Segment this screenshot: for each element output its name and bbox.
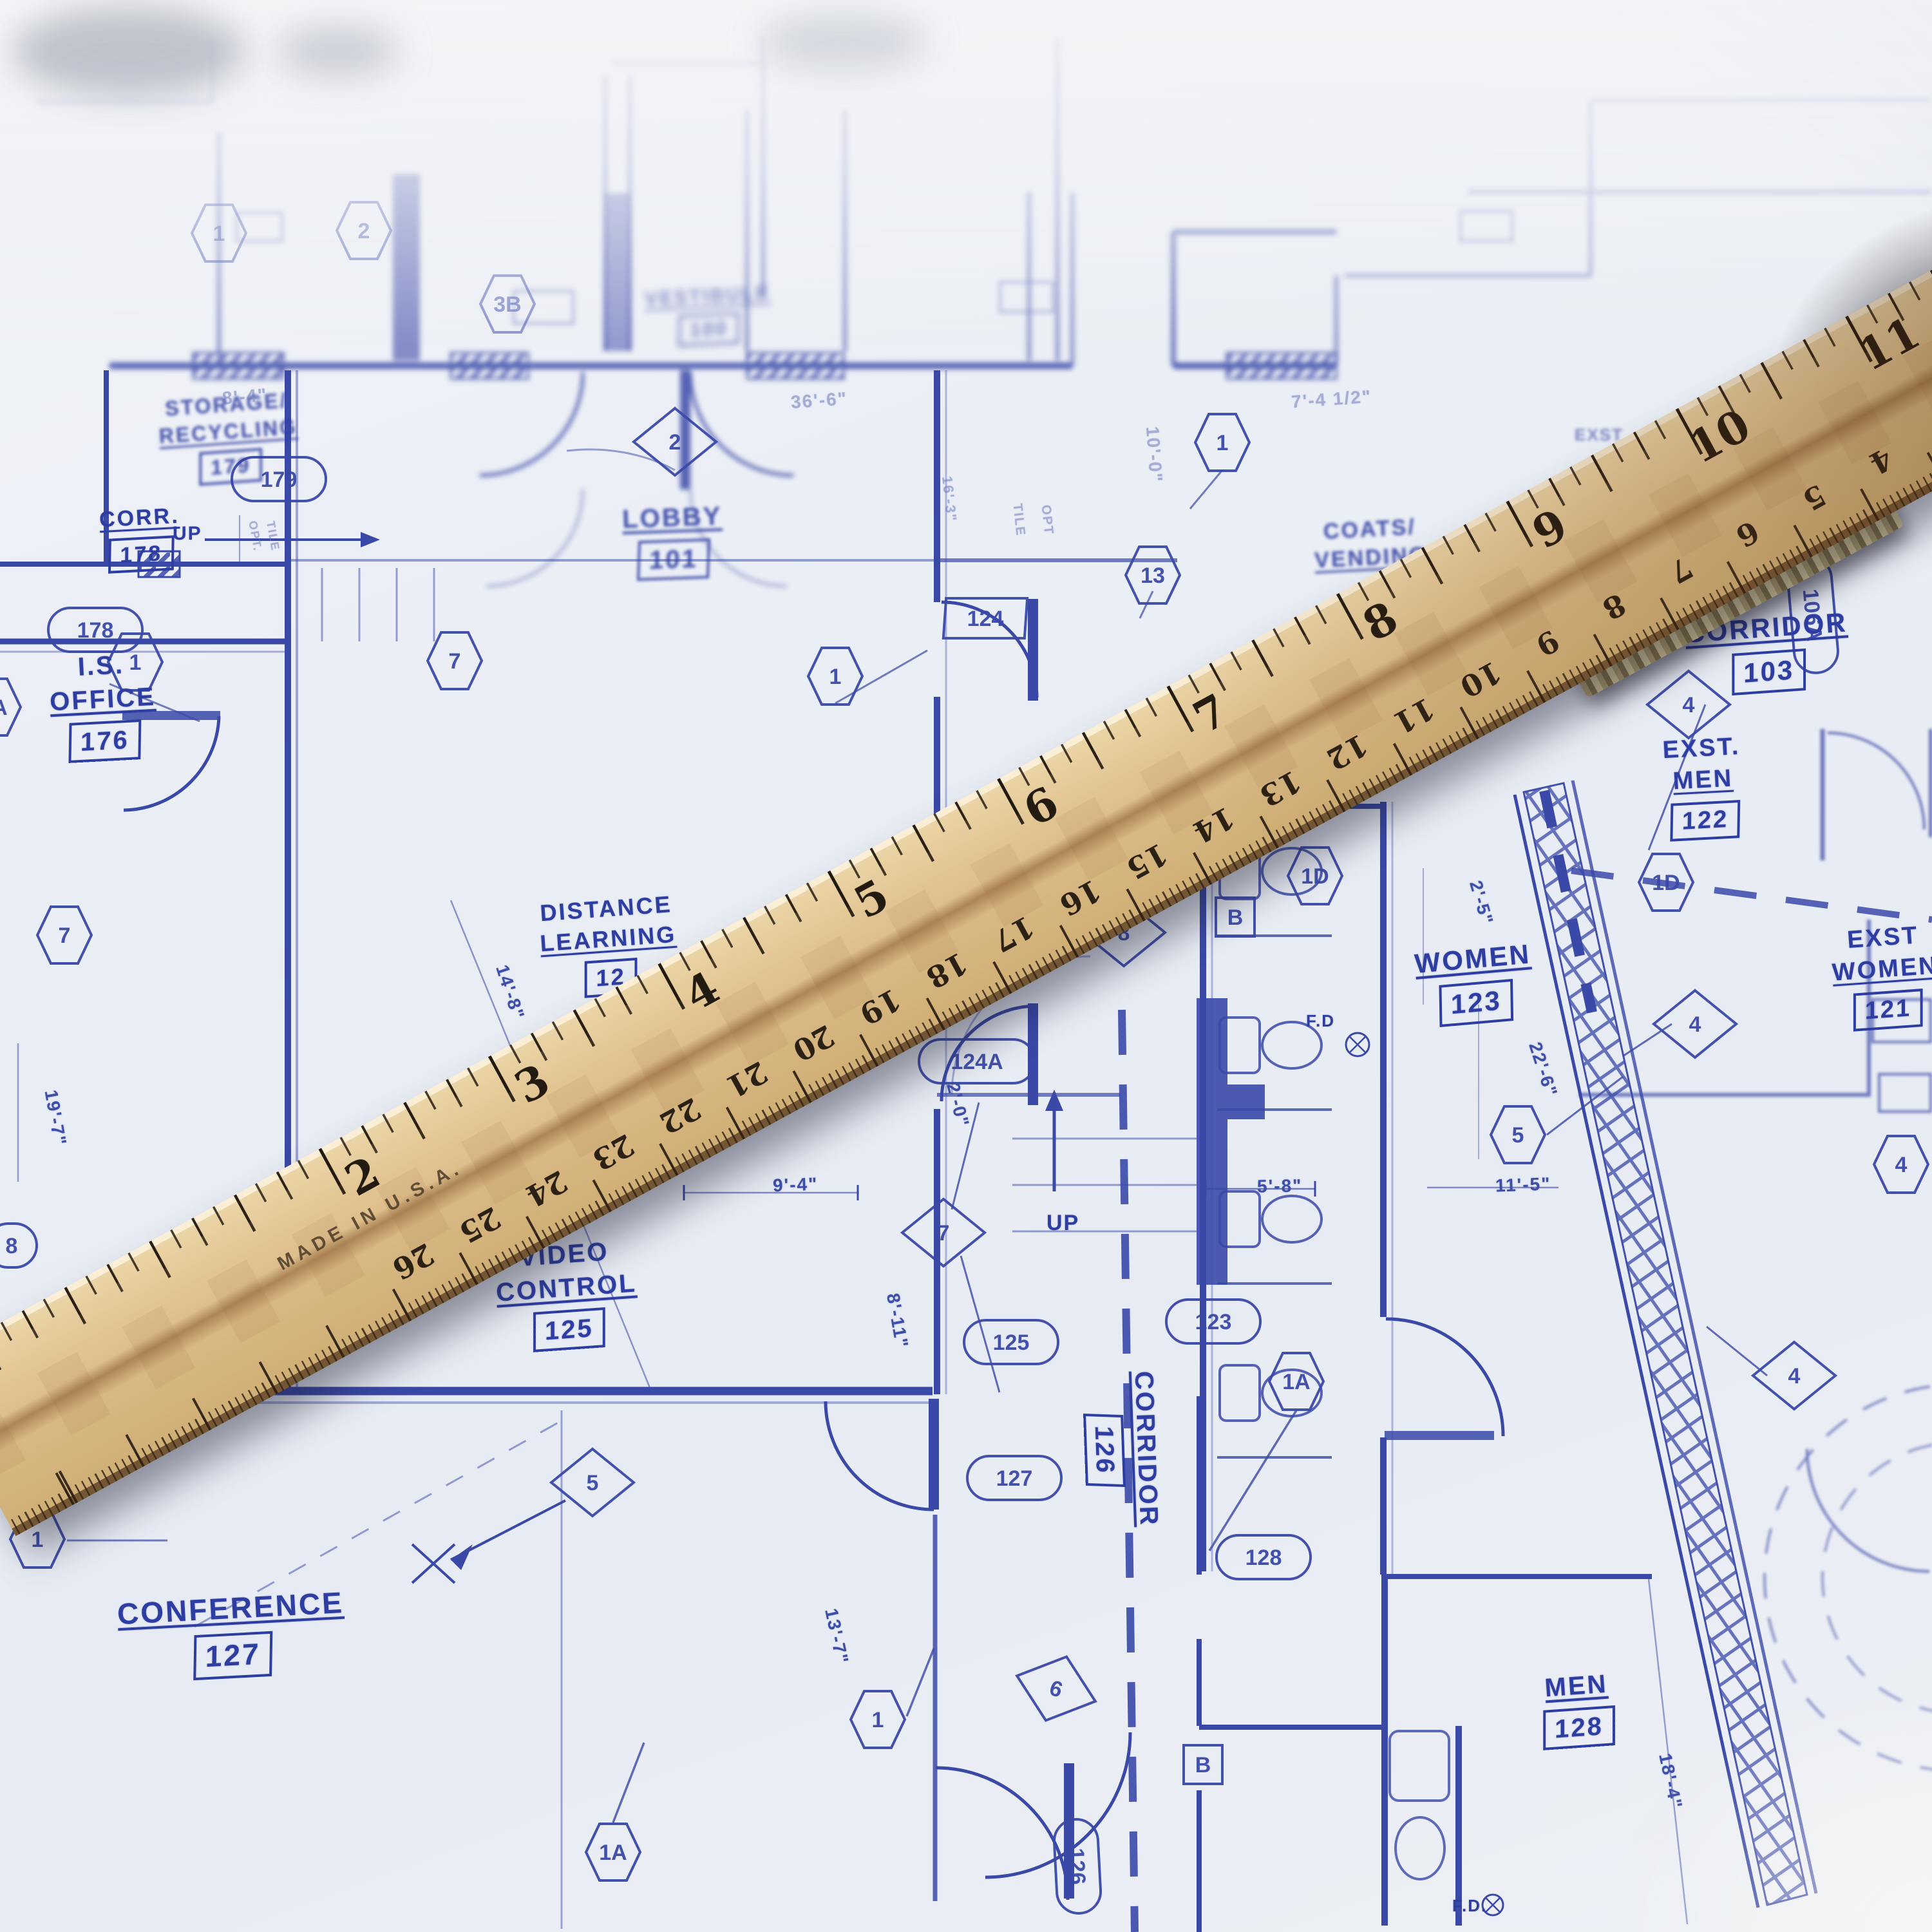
room-number-box: 128: [1543, 1705, 1615, 1750]
hex-tag-1A: 1A: [586, 1824, 640, 1880]
oval-tag-178: 178: [48, 608, 142, 652]
tag-label: 5: [587, 1471, 599, 1495]
inch-tick: [319, 1148, 346, 1195]
tag-label: 6: [1046, 1676, 1066, 1703]
dimension-text: 10'-0": [1142, 426, 1166, 484]
oval-tag-124A: 124A: [919, 1039, 1035, 1083]
room-label-exst-men: EXST.MEN122: [1520, 723, 1886, 849]
tag-label: 124A: [951, 1050, 1003, 1074]
tag-label: 123: [1195, 1310, 1232, 1334]
hex-tag-5: 5: [1491, 1106, 1545, 1163]
tag-label: B: [1195, 1753, 1211, 1777]
made-in-usa-text: MADE IN U.S.A.: [274, 1157, 466, 1275]
room-label-is-office: I.S.OFFICE176: [0, 639, 286, 770]
ruler-cm-number: 25: [440, 1193, 519, 1257]
ruler-cm-number: 6: [1709, 502, 1787, 566]
ruler-cm-number: 20: [774, 1011, 853, 1075]
room-label-lobby: LOBBY101: [491, 495, 855, 585]
hex-tag-7: 7: [37, 907, 91, 963]
annotation-fd: F.D: [1306, 1011, 1335, 1031]
ruler-inch-number: 10: [1674, 396, 1766, 478]
tag-label: 1: [32, 1528, 44, 1552]
tag-label: 4: [1895, 1153, 1908, 1177]
tag-label: 1A: [1282, 1370, 1310, 1394]
hex-tag-1: 1: [808, 648, 862, 705]
dia-tag-5: 5: [551, 1449, 634, 1516]
room-number-box: 103: [1732, 648, 1806, 695]
ruler-cm-number: 10: [1441, 647, 1520, 712]
inch-tick: [1676, 408, 1703, 455]
dia-tag-4: 4: [1753, 1342, 1835, 1409]
hex-tag-1: 1: [1195, 414, 1249, 471]
ruler-cm-number: 16: [1041, 866, 1120, 930]
dimension-text: 36'-6": [790, 388, 848, 413]
ruler-inch-number: 8: [1334, 581, 1427, 663]
tag-label: 1D: [1652, 871, 1680, 895]
blueprint-photo: 123B11A7713111D1D51A11A14244456781791781…: [0, 0, 1932, 1932]
tag-label: 1A: [599, 1841, 627, 1865]
ruler-cm-number: 11: [1375, 683, 1454, 748]
tag-label: 178: [77, 618, 114, 643]
room-number-box: 101: [637, 538, 710, 581]
tag-label: B: [1227, 905, 1244, 930]
ruler-cm-number: 24: [507, 1157, 586, 1221]
annotation-up: UP: [173, 523, 202, 545]
room-number-box: 100: [678, 312, 740, 346]
ruler-cm-number: 15: [1108, 829, 1186, 893]
ruler-cm-number: 18: [907, 938, 986, 1003]
annotation-fd: F.D.: [1452, 1896, 1487, 1916]
oval-tag-128: 128: [1217, 1535, 1311, 1579]
ruler-inch-number: 3: [486, 1043, 579, 1126]
room-number-box: 178: [108, 535, 175, 574]
hex-tag-3B: 3B: [480, 276, 535, 332]
annotation-up: UP: [1046, 1211, 1079, 1236]
inch-tick: [1167, 685, 1195, 732]
inch-tick: [828, 871, 855, 918]
tag-label: 2: [358, 219, 370, 243]
dia-tag-6: 6: [1007, 1644, 1106, 1733]
tag-label: 3B: [493, 292, 521, 317]
ruler-cm-number: 14: [1175, 793, 1253, 857]
ruler-inch-number: 5: [826, 858, 918, 941]
inch-tick: [997, 778, 1025, 825]
tag-label: 7: [449, 649, 461, 674]
tag-label: 4: [1689, 1012, 1701, 1037]
tag-label: 125: [993, 1331, 1030, 1355]
dia-tag-2: 2: [634, 408, 716, 475]
sq-tag-B: B: [1184, 1745, 1222, 1784]
tag-label: 127: [996, 1466, 1033, 1491]
ruler-cm-number: 17: [974, 902, 1053, 966]
ruler-cm-number: 4: [1842, 429, 1920, 493]
ruler-cm-number: 22: [641, 1084, 719, 1148]
hex-tag-13: 13: [1126, 547, 1180, 603]
ruler-inch-number: 11: [1843, 303, 1932, 386]
ruler-cm-number: 21: [708, 1047, 786, 1112]
ruler-cm-number: 7: [1642, 538, 1720, 602]
tag-label: 2: [669, 430, 681, 455]
tag-label: 4: [1788, 1364, 1801, 1388]
room-label-corridor-126: CORRIDOR126: [1078, 1268, 1169, 1631]
oval-tag-127: 127: [967, 1456, 1061, 1500]
inch-tick: [488, 1056, 516, 1103]
oval-tag-126: 126: [1053, 1818, 1102, 1914]
ruler-cm-number: 26: [374, 1229, 453, 1294]
dimension-text: 9'-4": [772, 1174, 818, 1196]
oval-tag-125: 125: [964, 1320, 1058, 1364]
ruler-cm-number: 12: [1308, 720, 1387, 784]
room-number-box: 179: [199, 448, 262, 486]
ruler-cm-number: 13: [1242, 756, 1320, 820]
ruler-inch-number: 7: [1164, 673, 1257, 755]
inch-tick: [658, 963, 685, 1010]
dimension-text: 8'-4": [222, 384, 269, 409]
tag-label: 13: [1141, 563, 1165, 588]
tag-label: 1: [1217, 431, 1229, 455]
tag-label: 124: [967, 607, 1004, 631]
oval-tag-123: 123: [1166, 1300, 1260, 1343]
ruler-inch-number: 2: [316, 1135, 409, 1218]
tag-label: 1: [872, 1708, 884, 1732]
tag-label: 1: [213, 222, 225, 246]
room-number-box: 126: [1083, 1414, 1126, 1487]
room-label-conference: CONFERENCE127: [50, 1580, 414, 1687]
hex-tag-2: 2: [337, 202, 391, 259]
room-number-box: 127: [193, 1631, 272, 1680]
room-number-box: 122: [1670, 800, 1740, 842]
ruler-inch-number: 6: [995, 766, 1088, 848]
ruler-inch-number: 9: [1504, 488, 1596, 571]
tag-label: 5: [1512, 1123, 1524, 1148]
tag-label: 1D: [1301, 864, 1329, 889]
room-number-box: 121: [1853, 989, 1923, 1032]
room-number-box: 125: [533, 1307, 605, 1352]
ruler-cm-number: 8: [1575, 574, 1654, 639]
inch-tick: [1506, 500, 1533, 547]
tag-label: 126: [1064, 1848, 1090, 1886]
room-number-box: 176: [69, 719, 142, 763]
tag-label: 1: [829, 665, 842, 689]
ruler-cm-number: 19: [841, 974, 920, 1039]
tag-label: 128: [1245, 1546, 1282, 1570]
hex-tag-7: 7: [428, 632, 482, 689]
dimension-text: 5'-8": [1257, 1175, 1303, 1197]
ruler-cm-number: 9: [1508, 611, 1587, 675]
oval-tag-8: 8: [0, 1224, 37, 1267]
ruler-cm-number: 23: [574, 1120, 652, 1184]
hex-tag-1: 1: [851, 1691, 905, 1748]
inch-tick: [1336, 593, 1364, 640]
dia-tag-7: 7: [902, 1199, 985, 1266]
tag-label: 7: [938, 1221, 950, 1245]
tag-label: 7: [59, 923, 71, 948]
ruler-cm-number: 5: [1775, 465, 1853, 529]
hex-tag-4: 4: [1874, 1136, 1928, 1193]
sq-tag-B: B: [1216, 898, 1255, 936]
inch-tick: [1845, 316, 1873, 363]
ruler-inch-number: 4: [656, 951, 748, 1033]
center-corridor: [684, 1010, 1652, 1932]
hex-tag-1A: 1A: [1269, 1353, 1323, 1410]
room-number-box: 123: [1439, 978, 1514, 1027]
tag-label: 8: [6, 1234, 18, 1258]
dimension-text: OPT: [1038, 504, 1056, 536]
dimension-text: 11'-5": [1495, 1174, 1551, 1197]
